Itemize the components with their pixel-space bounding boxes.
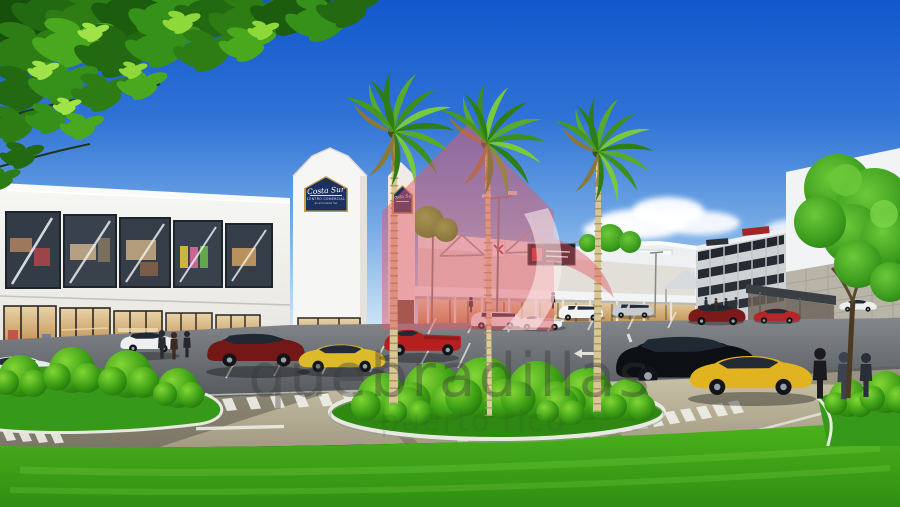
mall-sign-line: CENTRO COMERCIAL: [307, 197, 345, 201]
upper-windows: [6, 212, 272, 288]
mall-sign-small-panel: Costa Sur: [394, 187, 412, 213]
cinema-sign: [528, 244, 575, 265]
mall-sign-small: Costa Sur: [392, 185, 413, 214]
rendering-canvas: Costa Sur CENTRO COMERCIAL en el Corredo…: [0, 0, 900, 507]
mall-sign-small-rule: [396, 201, 409, 202]
mall-sign-tagline: en el Corredor Sur: [315, 202, 338, 205]
mall-sign-small-script: Costa Sur: [391, 194, 414, 201]
mall-sign-logo-script: Costa Sur: [307, 185, 345, 195]
shopping-center-scene: [0, 0, 900, 507]
mall-sign: Costa Sur CENTRO COMERCIAL en el Corredo…: [304, 176, 348, 212]
mall-sign-panel: Costa Sur CENTRO COMERCIAL en el Corredo…: [306, 178, 347, 211]
